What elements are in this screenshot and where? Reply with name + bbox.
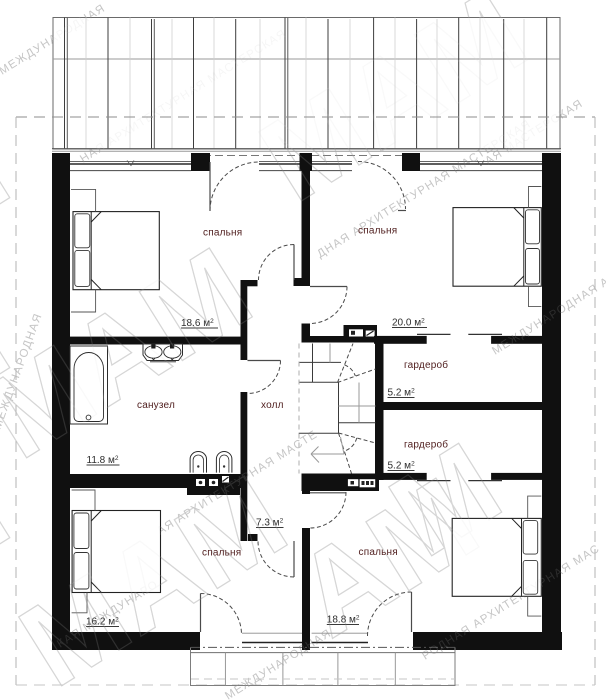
svg-text:гардероб: гардероб xyxy=(404,359,448,371)
svg-text:20.0 м2: 20.0 м2 xyxy=(392,318,425,329)
svg-text:холл: холл xyxy=(261,400,284,411)
svg-text:5.2 м2: 5.2 м2 xyxy=(388,388,416,399)
svg-text:11.8 м2: 11.8 м2 xyxy=(87,455,119,466)
